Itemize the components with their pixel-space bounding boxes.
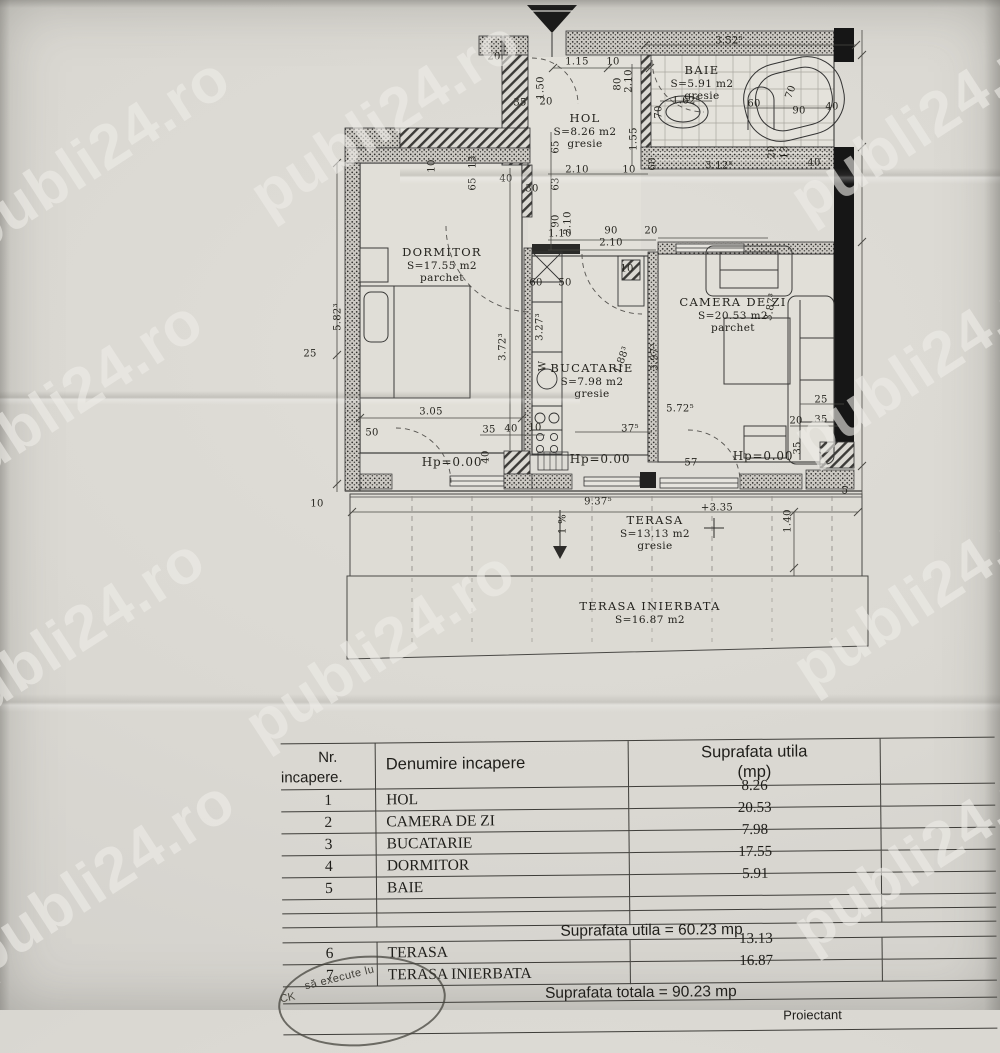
dimension-label: 35 (814, 415, 827, 426)
dimension-label: 80 (613, 77, 624, 90)
dimension-label: 10 (620, 264, 633, 275)
dimension-label: 2.10 (565, 165, 588, 176)
dimension-label: Hp=0.00 (422, 455, 483, 469)
dimension-label: 1.40 (783, 509, 794, 532)
dimension-label: 10 (310, 499, 323, 510)
footer-partial-label: Proiectant (783, 1007, 842, 1023)
dimension-label: 40 (504, 424, 517, 435)
dimension-label: 20 (487, 52, 500, 63)
dimension-label: 10 (528, 423, 541, 434)
scanned-floor-plan-page: HOL S=8.26 m2 gresie BAIE S=5.91 m2 gres… (0, 0, 1000, 1010)
dimension-label: 65 (551, 140, 562, 153)
dimension-label: 1.55 (629, 127, 640, 150)
table-rows-main: 1HOL8.262CAMERA DE ZI20.533BUCATARIE7.98… (281, 784, 996, 929)
dimension-label: 3.05 (419, 407, 442, 418)
dimension-label: 20 (767, 145, 778, 158)
floor-plan: HOL S=8.26 m2 gresie BAIE S=5.91 m2 gres… (0, 0, 1000, 700)
dimension-label: 1.50 (536, 76, 547, 99)
dimension-label: 1.15 (565, 57, 588, 68)
dimension-label: 5 (842, 486, 849, 497)
header-denumire-incapere: Denumire incapere (376, 741, 629, 789)
dimension-label: 40 (499, 174, 512, 185)
dimension-label: 35 (793, 441, 804, 454)
dimension-label: 35 (482, 425, 495, 436)
dimension-label: 5.72⁵ (666, 404, 694, 415)
dimension-label: 3.72³ (498, 333, 509, 361)
dimension-label: 3.52⁵ (715, 36, 743, 47)
dimension-label: 60 (529, 278, 542, 289)
dimension-label: 1.10 (548, 229, 571, 240)
dimension-label: 90 (551, 214, 562, 227)
dimension-label: 10 (606, 57, 619, 68)
dimension-label: 5.82³ (333, 303, 344, 331)
room-label-terasa: TERASA S=13.13 m2 gresie (620, 514, 690, 552)
header-nr-incapere: Nr. incapere. (281, 744, 376, 791)
dimension-label: Hp=0.00 (733, 449, 794, 463)
dimension-label: 1 % (558, 514, 569, 534)
dimension-label: 35 (513, 98, 526, 109)
room-label-dormitor: DORMITOR S=17.55 m2 parchet (402, 246, 482, 284)
dimension-label: 30 (525, 184, 538, 195)
dimension-label: 63 (551, 177, 562, 190)
dimension-label: 3.97³ (650, 343, 661, 371)
dimension-label: W (538, 361, 549, 372)
table-header-row: Nr. incapere. Denumire incapere Suprafat… (281, 737, 995, 791)
dimension-label: Hp=0.00 (570, 452, 631, 466)
dimension-label: 20 (789, 416, 802, 427)
dimension-label: 50 (558, 278, 571, 289)
dimension-label: 1.62⁵ (672, 96, 700, 107)
stamp-text: să execute lu (304, 963, 376, 992)
dimension-label: 10 (622, 165, 635, 176)
dimension-label: 60 (648, 157, 659, 170)
dimension-label: +3.35 (701, 503, 733, 514)
dimension-label: 60 (747, 99, 760, 110)
dimension-label: 10 (427, 159, 438, 172)
room-label-hol: HOL S=8.26 m2 gresie (554, 112, 617, 150)
dimension-label: 3.12⁵ (705, 161, 733, 172)
dimension-label: 25 (303, 349, 316, 360)
dimension-label: 90 (792, 106, 805, 117)
dimension-label: 50 (365, 428, 378, 439)
dimension-label: 65 (468, 177, 479, 190)
dimension-label: 57 (684, 458, 697, 469)
dimension-label: 20 (644, 226, 657, 237)
dimension-label: 13 (468, 155, 479, 168)
dimension-label: 37⁵ (621, 424, 639, 435)
dimension-label: 40 (807, 158, 820, 169)
dimension-label: 70 (654, 105, 665, 118)
dimension-label: 40 (825, 102, 838, 113)
dimension-label: 9.37⁵ (584, 497, 612, 508)
dimension-label: 25 (814, 395, 827, 406)
dimension-label: 3.27³ (535, 313, 546, 341)
dimension-label: 2.10 (624, 69, 635, 92)
watermark: publi24.ro (0, 765, 248, 991)
dimension-label: 90 (604, 226, 617, 237)
dimension-label: 13 (780, 145, 791, 158)
room-label-terasa-inierbata: TERASA INIERBATA S=16.87 m2 (579, 600, 720, 626)
dimension-label: 2.10 (599, 238, 622, 249)
